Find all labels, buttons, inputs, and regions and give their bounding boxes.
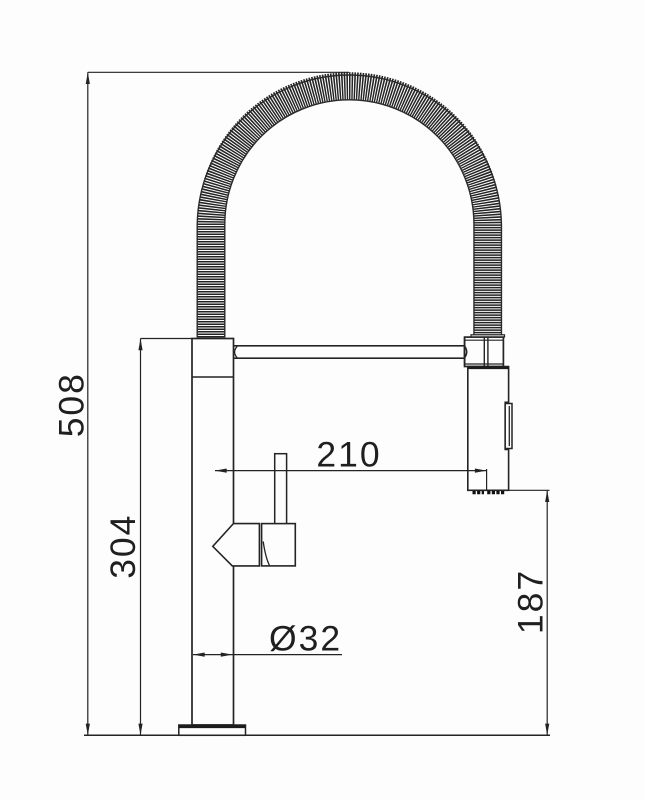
svg-text:210: 210: [316, 435, 381, 475]
svg-text:304: 304: [103, 514, 143, 579]
svg-text:508: 508: [52, 372, 92, 437]
svg-text:187: 187: [511, 569, 551, 634]
svg-text:Ø32: Ø32: [269, 618, 342, 658]
